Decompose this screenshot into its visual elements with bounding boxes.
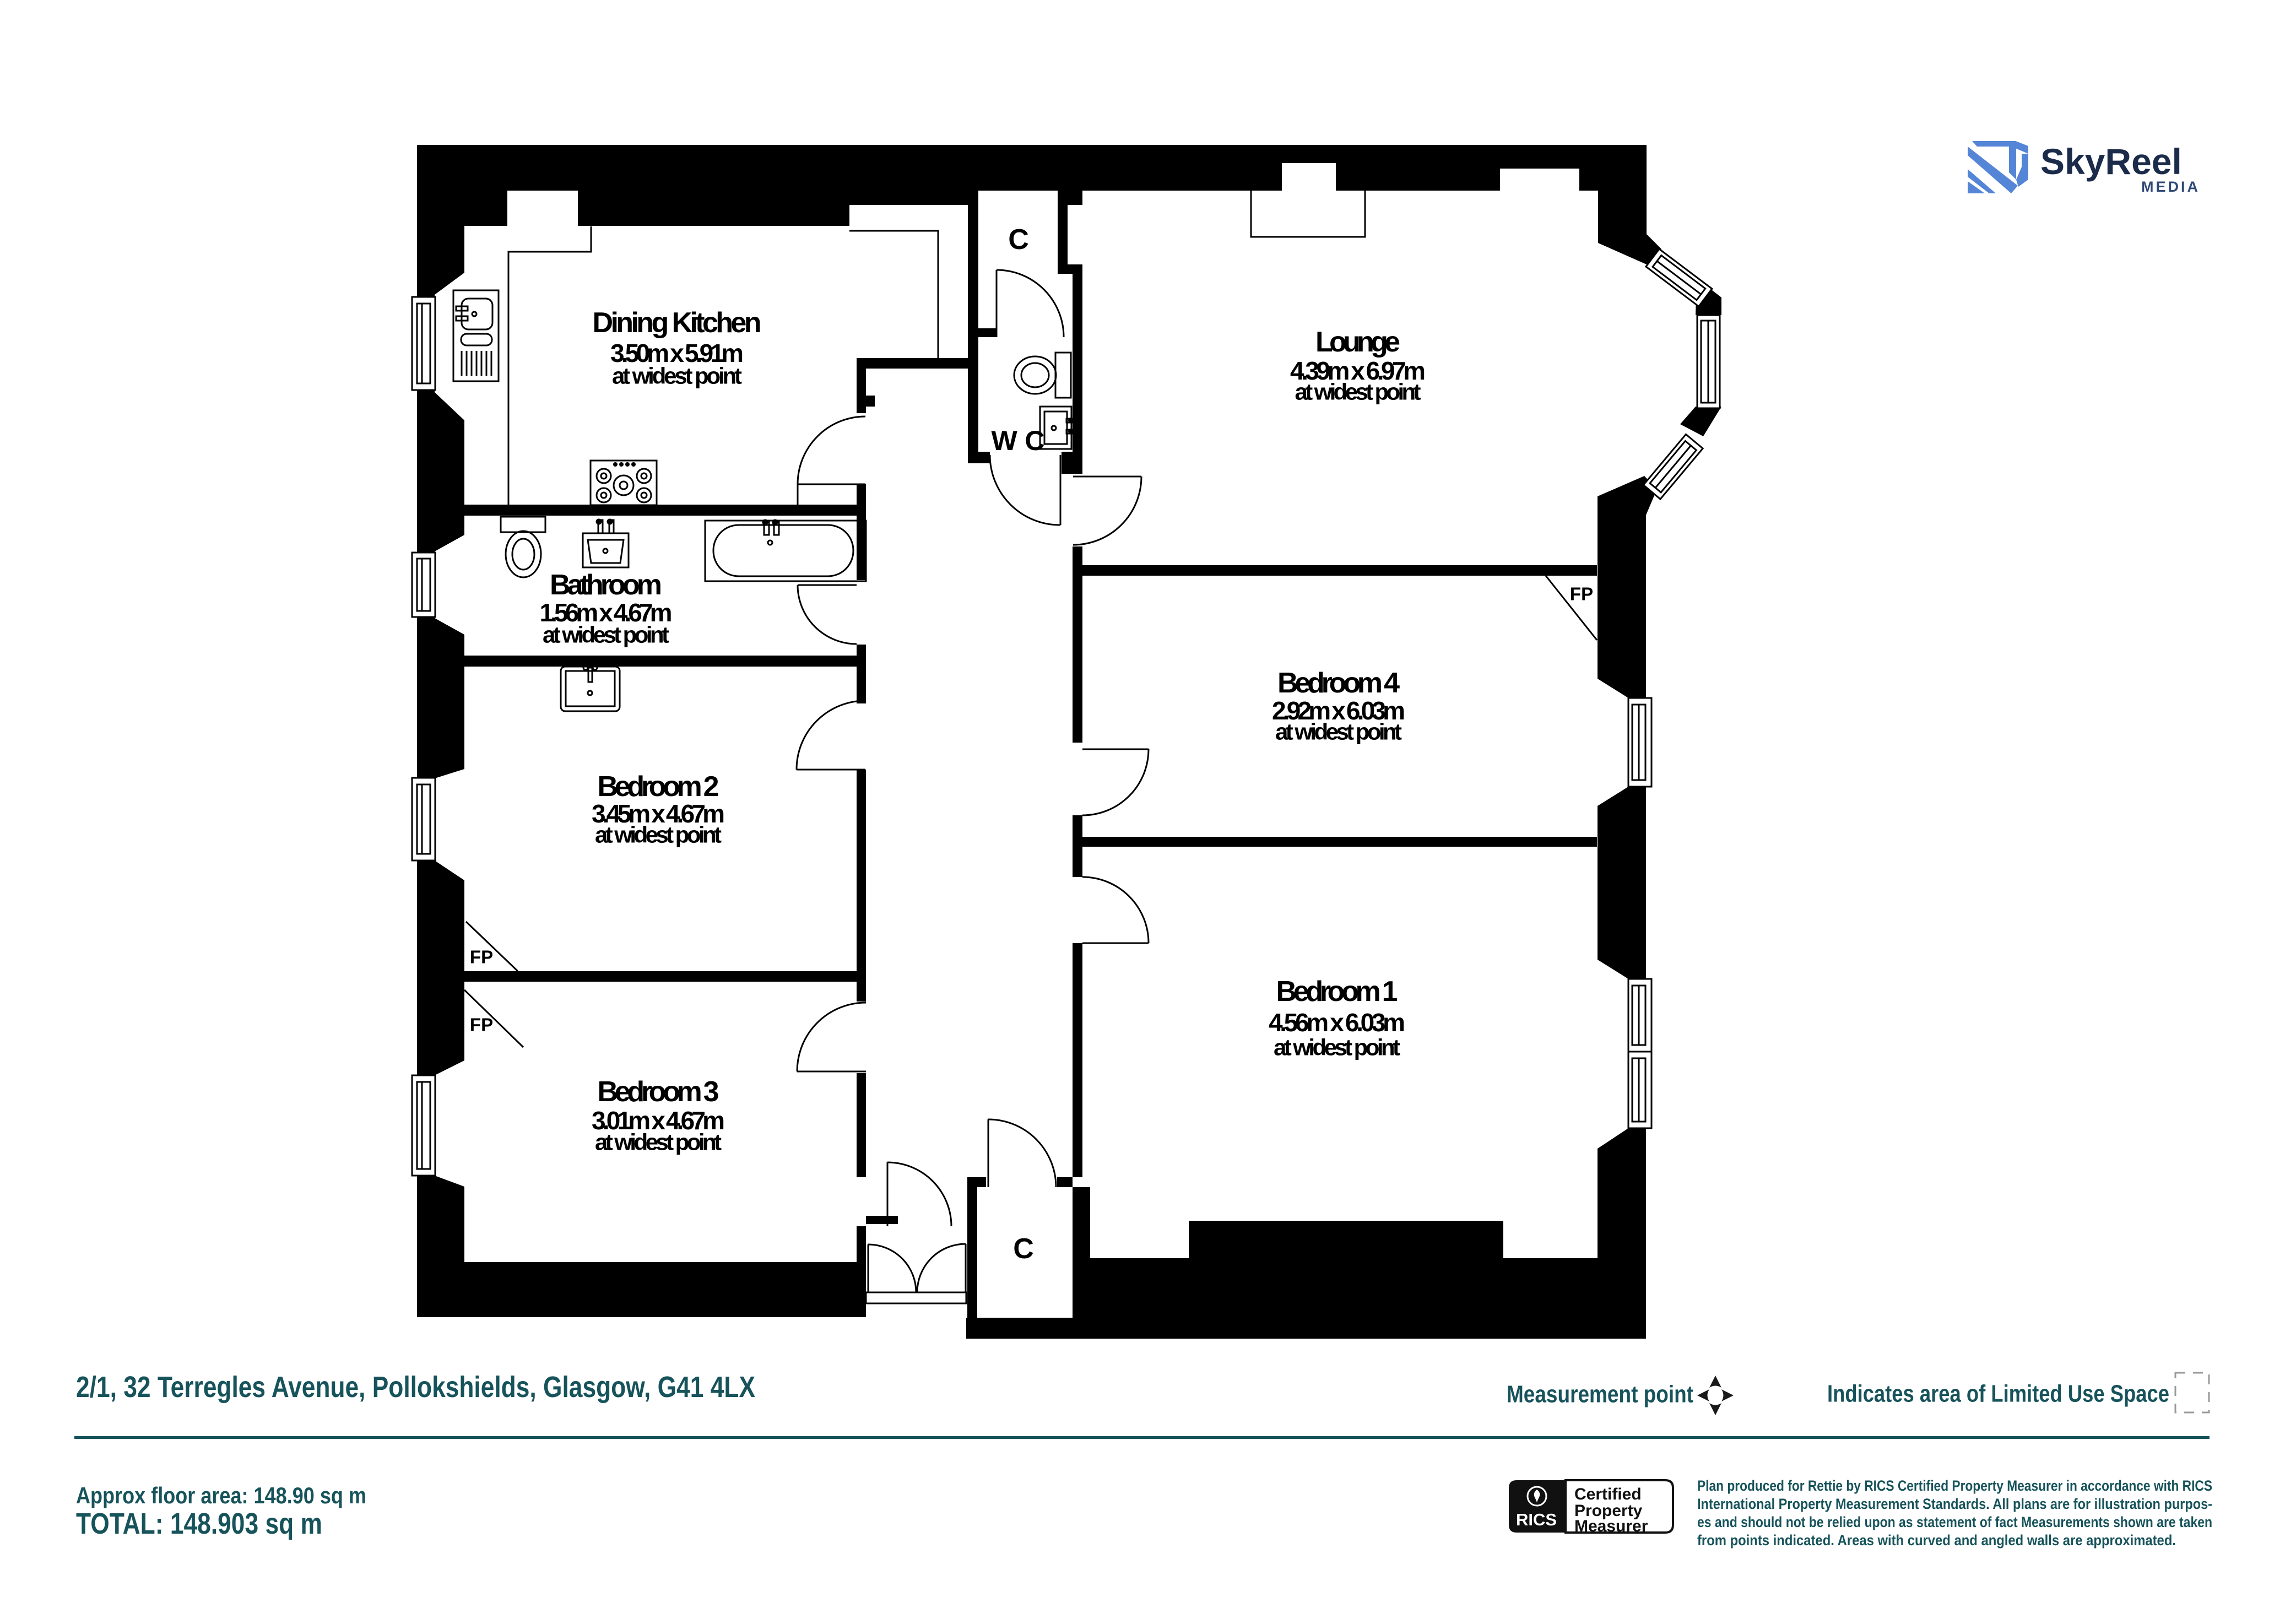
svg-text:2/1, 32 Terregles Avenue, Poll: 2/1, 32 Terregles Avenue, Pollokshields,…	[76, 1371, 755, 1404]
svg-text:Lounge: Lounge	[1315, 326, 1400, 358]
svg-text:Certified: Certified	[1574, 1485, 1642, 1503]
svg-text:International Property Measur: International Property Measurement Stand…	[1697, 1496, 2212, 1512]
svg-text:at widest point: at widest point	[1274, 1035, 1400, 1060]
svg-text:4.56m x 6.03m: 4.56m x 6.03m	[1269, 1008, 1405, 1037]
svg-text:Measurer: Measurer	[1574, 1517, 1648, 1535]
svg-text:Bedroom 3: Bedroom 3	[598, 1076, 719, 1108]
svg-text:at widest point: at widest point	[595, 822, 722, 848]
svg-text:Dining Kitchen: Dining Kitchen	[593, 307, 762, 339]
svg-text:Plan produced for Rettie by RI: Plan produced for Rettie by RICS Certifi…	[1697, 1477, 2212, 1494]
svg-text:Measurement point: Measurement point	[1507, 1381, 1693, 1408]
svg-text:FP: FP	[470, 947, 493, 967]
svg-text:at widest point: at widest point	[1295, 379, 1421, 405]
svg-text:C: C	[1008, 224, 1029, 256]
svg-text:SkyReel: SkyReel	[2040, 141, 2182, 182]
svg-text:Approx floor area: 148.90 sq m: Approx floor area: 148.90 sq m	[76, 1482, 366, 1508]
svg-text:MEDIA: MEDIA	[2141, 178, 2200, 195]
svg-text:from points indicated. Areas w: from points indicated. Areas with curved…	[1697, 1532, 2176, 1549]
svg-text:at widest point: at widest point	[543, 622, 669, 648]
svg-text:at widest point: at widest point	[612, 363, 742, 389]
svg-text:es and should not be relied up: es and should not be relied upon as stat…	[1697, 1514, 2212, 1530]
svg-text:Indicates area of Limited Use: Indicates area of Limited Use Space	[1827, 1381, 2169, 1408]
svg-text:RICS: RICS	[1516, 1510, 1557, 1529]
svg-text:at widest point: at widest point	[595, 1129, 722, 1155]
svg-text:Bathroom: Bathroom	[550, 569, 662, 601]
svg-text:Bedroom 2: Bedroom 2	[598, 771, 719, 803]
svg-text:at widest point: at widest point	[1275, 719, 1402, 745]
svg-text:Bedroom 4: Bedroom 4	[1277, 667, 1400, 699]
svg-text:FP: FP	[1570, 584, 1593, 604]
svg-text:C: C	[1013, 1233, 1034, 1265]
svg-text:FP: FP	[470, 1015, 493, 1035]
svg-text:Bedroom 1: Bedroom 1	[1276, 976, 1398, 1008]
svg-text:TOTAL: 148.903 sq m: TOTAL: 148.903 sq m	[76, 1507, 322, 1540]
